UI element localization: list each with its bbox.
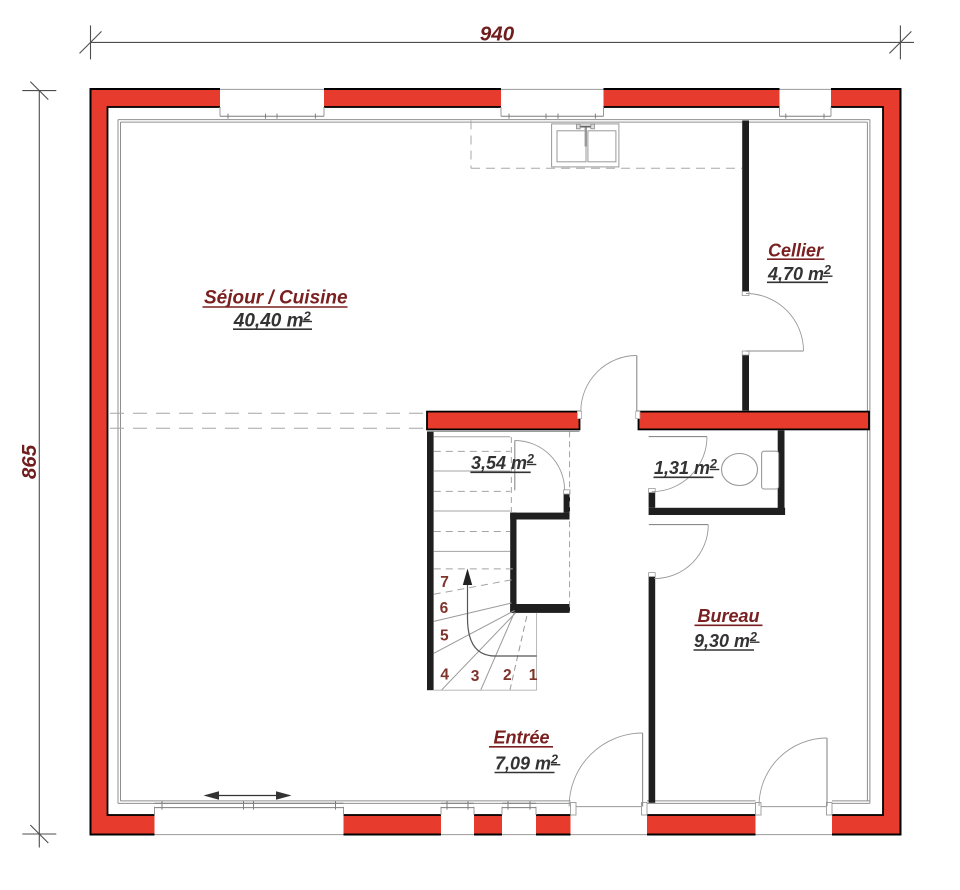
svg-text:7,09 m2: 7,09 m2	[495, 753, 558, 774]
svg-text:Bureau: Bureau	[697, 606, 759, 626]
svg-text:1,31 m2: 1,31 m2	[654, 457, 717, 478]
svg-text:865: 865	[18, 444, 41, 479]
svg-text:2: 2	[503, 667, 512, 684]
svg-text:940: 940	[480, 23, 515, 46]
svg-text:9,30 m2: 9,30 m2	[694, 630, 757, 651]
svg-text:3,54 m2: 3,54 m2	[471, 452, 534, 473]
svg-text:4,70 m2: 4,70 m2	[767, 263, 831, 284]
svg-text:7: 7	[440, 574, 449, 591]
svg-text:6: 6	[440, 600, 449, 617]
svg-text:Cellier: Cellier	[768, 241, 824, 261]
svg-text:3: 3	[471, 668, 480, 685]
svg-text:Séjour / Cuisine: Séjour / Cuisine	[204, 288, 348, 309]
svg-text:5: 5	[440, 627, 449, 644]
svg-text:40,40 m2: 40,40 m2	[233, 309, 312, 332]
svg-text:4: 4	[440, 666, 449, 683]
svg-text:1: 1	[529, 667, 538, 684]
svg-text:Entrée: Entrée	[493, 728, 549, 748]
